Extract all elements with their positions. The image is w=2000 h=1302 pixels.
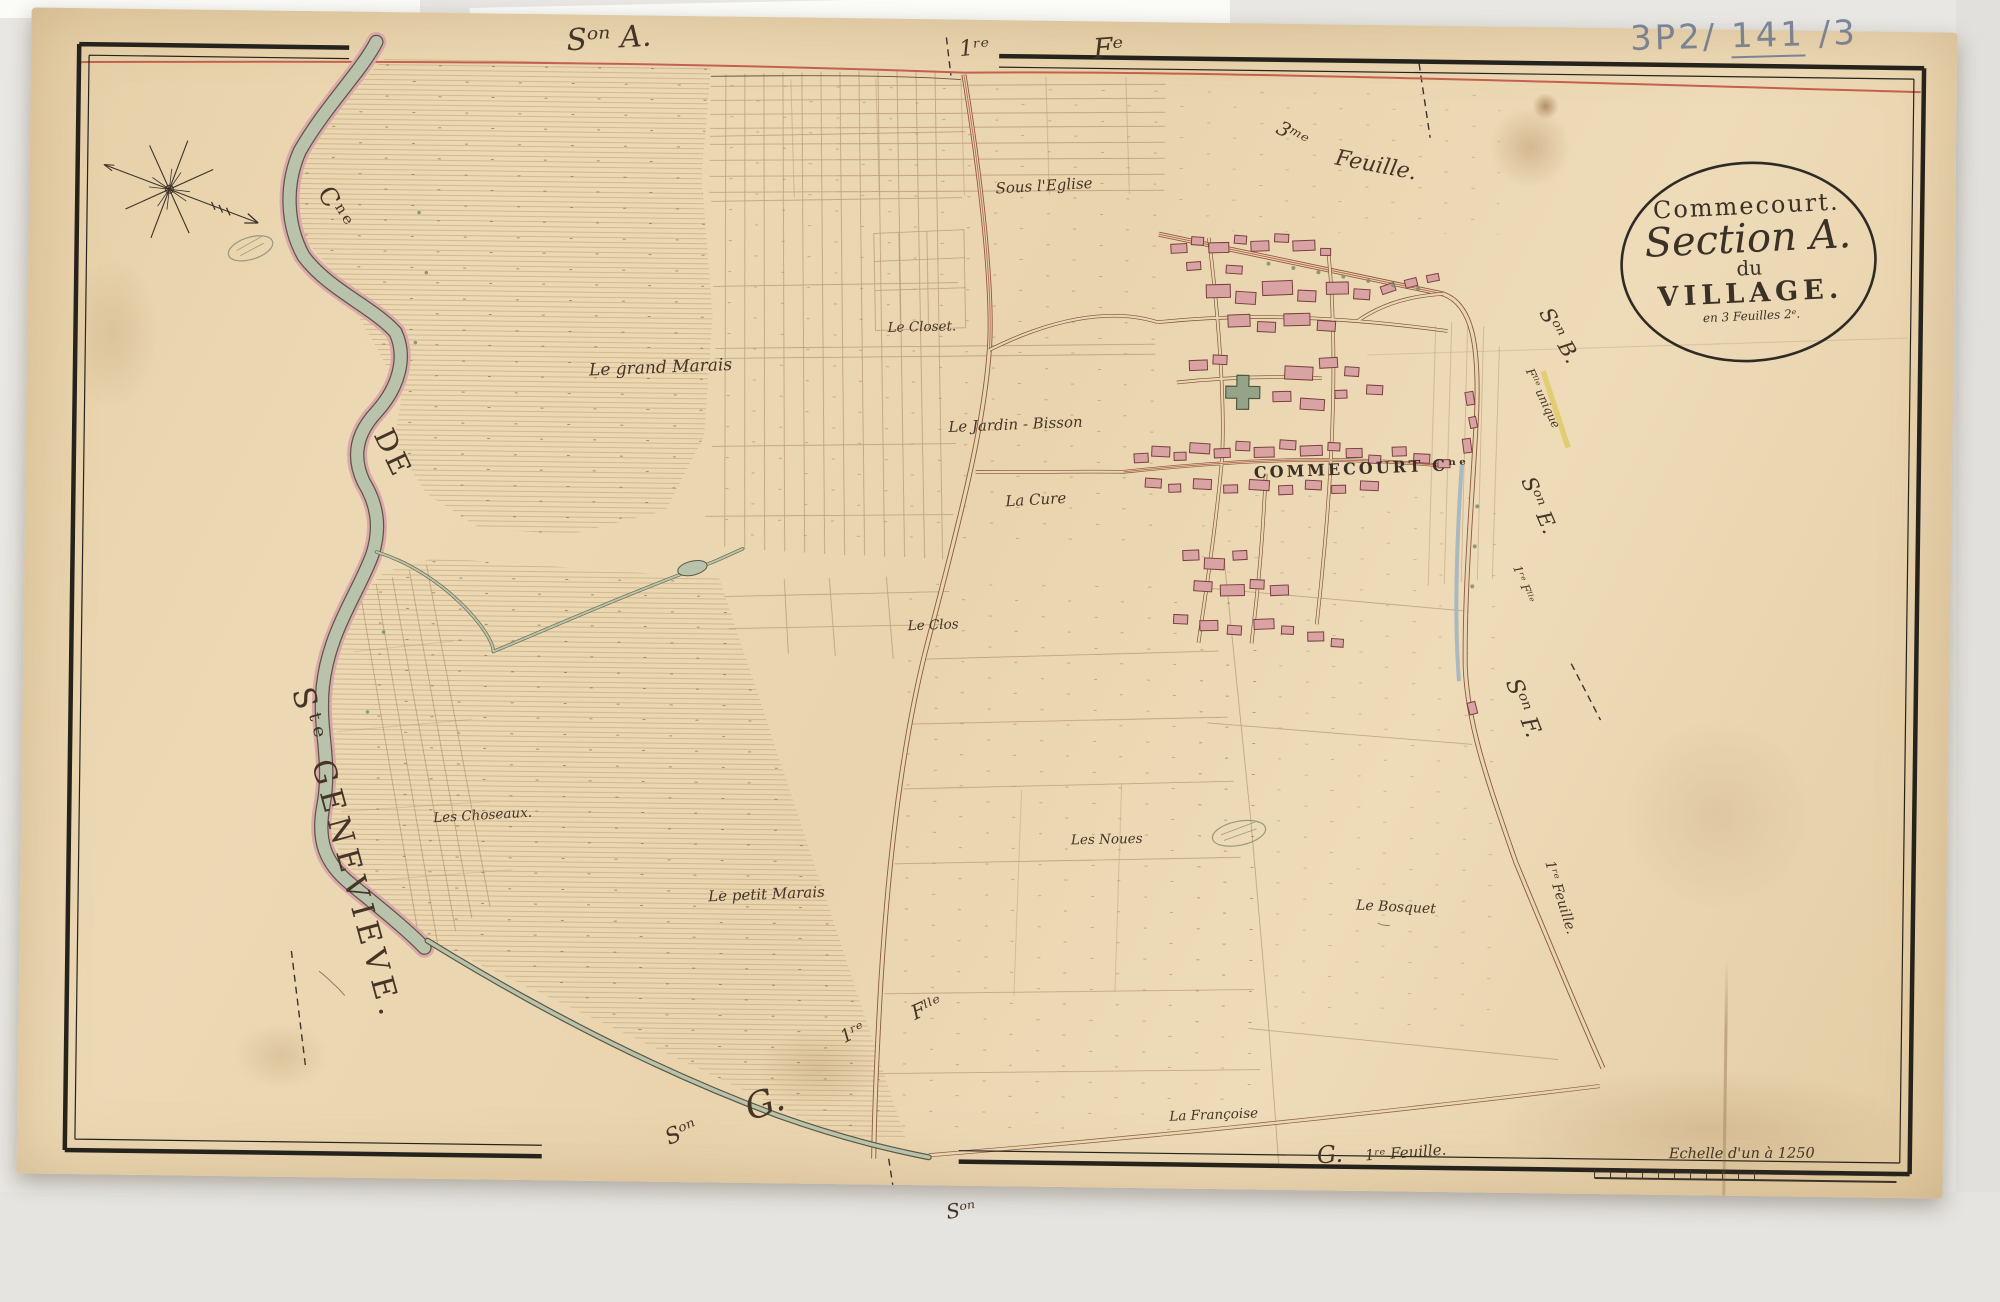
backdrop-table-edge <box>1956 0 2000 1302</box>
map-sheet: Commecourt. Section A. du VILLAGE. en 3 … <box>16 7 1957 1198</box>
margin-label-feuille-mark: Fᵉ <box>1092 30 1125 65</box>
label-bottom-g: G. <box>1316 1140 1344 1170</box>
margin-label-section-a: Sᵒⁿ A. <box>565 19 652 59</box>
archive-reference-number: 3P2/ 141 /3 <box>1630 13 1859 59</box>
cartouche-title: Commecourt. Section A. du VILLAGE. en 3 … <box>1621 186 1878 358</box>
archive-ref-part2: 141 <box>1731 14 1806 58</box>
scale-caption: Echelle d'un à 1250 <box>1669 1146 1815 1163</box>
label-closet: Le Closet. <box>887 318 956 335</box>
label-below-border-son: Sᵒⁿ <box>944 1195 977 1223</box>
archive-ref-part1: 3P2/ <box>1630 16 1732 59</box>
margin-label-premiere: 1ʳᵉ <box>958 34 990 62</box>
label-cure: La Cure <box>1005 489 1067 510</box>
cartouche-frame <box>16 7 1957 1198</box>
label-clos: Le Clos <box>907 616 959 634</box>
scanned-cadastral-map-photo: { "archive_ref": { "p1": "3P2/ ", "p2": … <box>0 0 2000 1302</box>
label-noues: Les Noues <box>1071 831 1143 849</box>
backdrop-table-bottom <box>0 1192 2000 1302</box>
archive-ref-part3: /3 <box>1804 13 1858 54</box>
